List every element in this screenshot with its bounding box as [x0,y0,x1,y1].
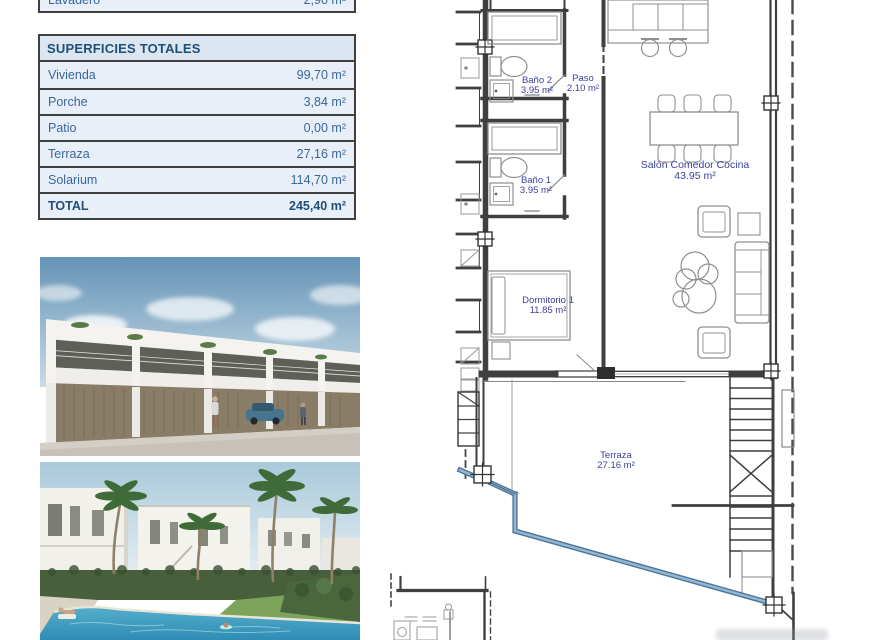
row-value: 0,00 m² [304,121,346,135]
right-wall [771,0,777,600]
row-value: 99,70 m² [297,68,346,82]
table-row: Lavadero 2,90 m² [40,0,354,11]
cutoff-footer-smudge [716,629,828,640]
table-row: Porche 3,84 m² [40,88,354,114]
cutoff-table-lavadero: Lavadero 2,90 m² [38,0,356,13]
row-label: Porche [48,95,88,109]
table-row-total: TOTAL 245,40 m² [40,192,354,218]
row-value: 114,70 m² [291,173,346,187]
dining-table [650,95,738,162]
room-label-terraza: Terraza27.16 m² [597,451,635,471]
row-label: TOTAL [48,199,89,213]
room-label-banyo2: Baño 23.95 m² [521,76,553,96]
row-value: 2,90 m² [304,0,346,7]
row-label: Lavadero [48,0,100,7]
table-row: Patio 0,00 m² [40,114,354,140]
row-label: Vivienda [48,68,96,82]
row-value: 3,84 m² [304,95,346,109]
row-value: 27,16 m² [297,147,346,161]
render-photo-exterior [40,257,360,456]
table-row: Vivienda 99,70 m² [40,62,354,88]
table-row: Terraza 27,16 m² [40,140,354,166]
room-label-paso: Paso2.10 m² [567,74,599,94]
plant [673,252,718,313]
party-wall-details [457,12,480,362]
staircase [730,378,772,596]
row-value: 245,40 m² [289,199,346,213]
table-title: SUPERFICIES TOTALES [40,36,354,62]
bottom-wall [482,355,770,382]
table-row: Solarium 114,70 m² [40,166,354,192]
totals-table: SUPERFICIES TOTALES Vivienda 99,70 m² Po… [38,34,356,220]
row-label: Terraza [48,147,90,161]
kitchen-counter [608,0,708,57]
row-label: Patio [48,121,77,135]
boundary-line [460,470,793,620]
room-label-dormitorio1: Dormitorio 111.85 m² [522,296,574,316]
row-label: Solarium [48,173,97,187]
render-photo-pool [40,462,360,640]
room-label-salon: Salón Comedor Cocina43.95 m² [641,160,750,182]
brochure-page: Lavadero 2,90 m² SUPERFICIES TOTALES Viv… [0,0,880,640]
plan-fragment-below [391,574,491,640]
bathroom1-fixtures [488,123,561,211]
room-label-banyo1: Baño 13.95 m² [520,176,552,196]
floorplan-drawing [380,0,880,640]
